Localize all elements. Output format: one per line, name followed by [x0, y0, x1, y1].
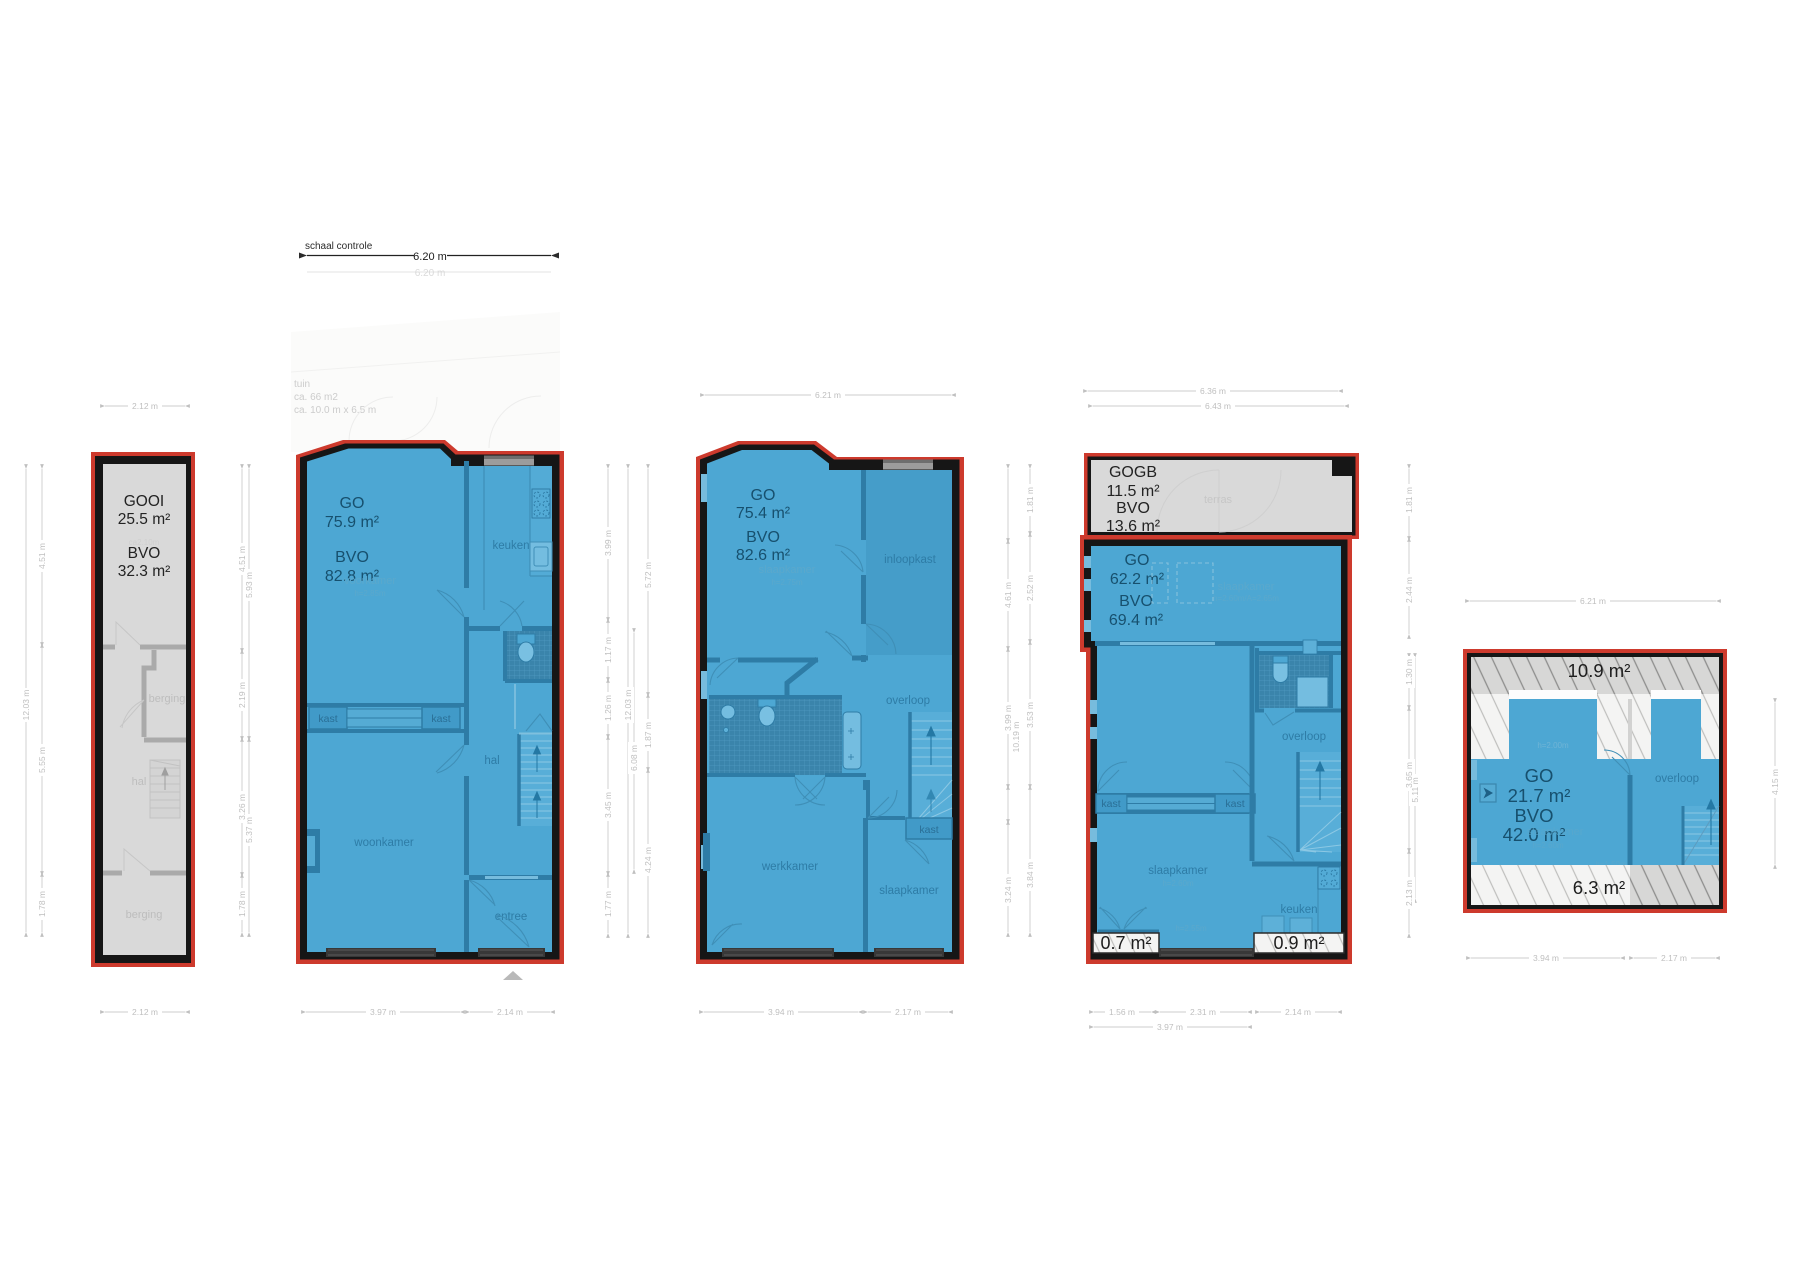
- svg-text:1.81 m: 1.81 m: [1404, 487, 1414, 513]
- svg-text:inloopkast: inloopkast: [884, 554, 937, 566]
- svg-text:terras: terras: [1204, 494, 1233, 506]
- svg-text:BVO: BVO: [1514, 805, 1553, 826]
- svg-text:32.3 m²: 32.3 m²: [118, 563, 171, 580]
- svg-text:werkkamer: werkkamer: [761, 861, 818, 873]
- svg-text:h=2.00m: h=2.00m: [1537, 741, 1569, 750]
- svg-text:3.99 m: 3.99 m: [603, 530, 613, 556]
- svg-text:4.15 m: 4.15 m: [1770, 769, 1780, 795]
- svg-text:6.21 m: 6.21 m: [1580, 596, 1606, 606]
- svg-text:BVO: BVO: [128, 545, 161, 562]
- svg-text:schaal controle: schaal controle: [305, 241, 373, 252]
- svg-text:keuken: keuken: [492, 540, 529, 552]
- svg-text:GO: GO: [340, 495, 365, 512]
- svg-text:21.7 m²: 21.7 m²: [1508, 785, 1571, 806]
- svg-text:5.11 m: 5.11 m: [1410, 777, 1420, 802]
- svg-text:overloop: overloop: [1282, 731, 1326, 743]
- svg-text:kast: kast: [431, 713, 450, 725]
- svg-text:2.17 m: 2.17 m: [1661, 953, 1687, 963]
- svg-text:10.9 m²: 10.9 m²: [1568, 660, 1631, 681]
- svg-text:6.08 m: 6.08 m: [629, 745, 639, 771]
- svg-text:GO: GO: [751, 487, 776, 504]
- svg-text:2.19 m: 2.19 m: [237, 682, 247, 708]
- svg-text:69.4 m²: 69.4 m²: [1109, 612, 1164, 629]
- svg-text:slaapkamer: slaapkamer: [879, 885, 939, 897]
- svg-text:82.6 m²: 82.6 m²: [736, 547, 791, 564]
- svg-text:1.17 m: 1.17 m: [603, 637, 613, 663]
- svg-text:6.20 m: 6.20 m: [413, 251, 447, 263]
- svg-text:3.97 m: 3.97 m: [1157, 1022, 1183, 1032]
- svg-text:6.21 m: 6.21 m: [815, 390, 841, 400]
- svg-text:h=2.60m/A=2.65m: h=2.60m/A=2.65m: [1213, 594, 1279, 603]
- svg-text:12.03 m: 12.03 m: [623, 690, 633, 721]
- svg-text:GO: GO: [1125, 552, 1150, 569]
- svg-text:BVO: BVO: [1119, 593, 1153, 610]
- svg-text:berging: berging: [126, 909, 163, 921]
- svg-text:3.97 m: 3.97 m: [370, 1007, 396, 1017]
- svg-text:2.17 m: 2.17 m: [895, 1007, 921, 1017]
- svg-text:kast: kast: [919, 824, 938, 836]
- svg-text:3.45 m: 3.45 m: [603, 792, 613, 818]
- svg-text:2.31 m: 2.31 m: [1190, 1007, 1216, 1017]
- svg-text:woonkamer: woonkamer: [353, 837, 414, 849]
- svg-text:berging: berging: [149, 693, 186, 705]
- svg-text:1.26 m: 1.26 m: [603, 695, 613, 721]
- svg-text:2.13 m: 2.13 m: [1404, 880, 1414, 906]
- svg-text:voorkamer: voorkamer: [344, 575, 396, 587]
- svg-text:GOGB: GOGB: [1109, 464, 1157, 481]
- svg-text:kast: kast: [318, 713, 337, 725]
- svg-text:hal: hal: [484, 755, 499, 767]
- svg-text:ca. 66 m2: ca. 66 m2: [294, 392, 338, 403]
- svg-text:slaapkamer: slaapkamer: [1148, 865, 1208, 877]
- svg-text:GOOI: GOOI: [124, 493, 164, 510]
- svg-text:11.5 m²: 11.5 m²: [1106, 483, 1160, 500]
- svg-text:slaapkamer: slaapkamer: [759, 564, 816, 576]
- svg-text:kast: kast: [1225, 798, 1244, 810]
- svg-text:3.24 m: 3.24 m: [1003, 877, 1013, 903]
- svg-text:75.4 m²: 75.4 m²: [736, 505, 791, 522]
- svg-text:3.94 m: 3.94 m: [1533, 953, 1559, 963]
- svg-text:ca. 10.0 m x 6.5 m: ca. 10.0 m x 6.5 m: [294, 405, 376, 416]
- svg-text:0.9 m²: 0.9 m²: [1273, 933, 1324, 953]
- svg-text:overloop: overloop: [1655, 773, 1699, 785]
- svg-text:2.14 m: 2.14 m: [497, 1007, 523, 1017]
- svg-text:3.94 m: 3.94 m: [768, 1007, 794, 1017]
- svg-text:slaapkamer: slaapkamer: [1527, 826, 1584, 838]
- svg-text:keuken: keuken: [1280, 904, 1317, 916]
- svg-text:3.53 m: 3.53 m: [1025, 702, 1035, 728]
- svg-text:5.37 m: 5.37 m: [244, 817, 254, 843]
- svg-text:3.84 m: 3.84 m: [1025, 862, 1035, 888]
- svg-text:4.51 m: 4.51 m: [37, 543, 47, 569]
- svg-text:2.52 m: 2.52 m: [1025, 575, 1035, 601]
- svg-text:kast: kast: [1101, 798, 1120, 810]
- svg-text:2.14 m: 2.14 m: [1285, 1007, 1311, 1017]
- svg-text:25.5 m²: 25.5 m²: [118, 511, 171, 528]
- svg-text:4.61 m: 4.61 m: [1003, 582, 1013, 608]
- svg-text:2.12 m: 2.12 m: [132, 1007, 158, 1017]
- svg-text:4.24 m: 4.24 m: [643, 847, 653, 873]
- svg-text:GO: GO: [1525, 765, 1554, 786]
- svg-text:5.93 m: 5.93 m: [244, 572, 254, 598]
- svg-text:5.72 m: 5.72 m: [643, 562, 653, 588]
- svg-text:12.03 m: 12.03 m: [21, 690, 31, 721]
- svg-text:h=2.75m: h=2.75m: [771, 578, 803, 587]
- svg-text:10.19 m: 10.19 m: [1011, 722, 1021, 753]
- svg-text:hal: hal: [132, 776, 147, 788]
- svg-text:1.87 m: 1.87 m: [643, 722, 653, 748]
- svg-text:2.12 m: 2.12 m: [132, 401, 158, 411]
- svg-text:overloop: overloop: [886, 695, 930, 707]
- svg-text:6.43 m: 6.43 m: [1205, 401, 1231, 411]
- svg-text:BVO: BVO: [1116, 500, 1150, 517]
- svg-text:6.36 m: 6.36 m: [1200, 386, 1226, 396]
- svg-text:6.3 m²: 6.3 m²: [1573, 877, 1625, 898]
- svg-text:h=2.85m: h=2.85m: [354, 589, 386, 598]
- svg-text:6.20 m: 6.20 m: [415, 268, 446, 279]
- svg-text:1.81 m: 1.81 m: [1025, 487, 1035, 513]
- svg-text:BVO: BVO: [746, 529, 780, 546]
- svg-text:1.56 m: 1.56 m: [1109, 1007, 1135, 1017]
- svg-text:h=2.60m: h=2.60m: [1162, 879, 1194, 888]
- svg-text:BVO: BVO: [335, 549, 369, 566]
- svg-text:75.9 m²: 75.9 m²: [325, 514, 380, 531]
- svg-text:h=2.55m: h=2.55m: [1175, 924, 1207, 933]
- svg-text:4.51 m: 4.51 m: [237, 546, 247, 572]
- svg-text:1.78 m: 1.78 m: [37, 891, 47, 917]
- svg-text:62.2 m²: 62.2 m²: [1110, 571, 1165, 588]
- svg-text:0.7 m²: 0.7 m²: [1100, 933, 1151, 953]
- svg-text:1.30 m: 1.30 m: [1404, 659, 1414, 685]
- svg-text:tuin: tuin: [294, 379, 310, 390]
- svg-text:1.78 m: 1.78 m: [237, 891, 247, 917]
- svg-text:3.26 m: 3.26 m: [237, 794, 247, 820]
- svg-text:2.44 m: 2.44 m: [1404, 577, 1414, 603]
- svg-text:h=2.60m: h=2.60m: [1532, 841, 1564, 850]
- svg-text:slaapkamer: slaapkamer: [1218, 581, 1275, 593]
- svg-text:1.77 m: 1.77 m: [603, 891, 613, 917]
- svg-text:13.6 m²: 13.6 m²: [1106, 518, 1161, 535]
- svg-text:5.55 m: 5.55 m: [37, 747, 47, 773]
